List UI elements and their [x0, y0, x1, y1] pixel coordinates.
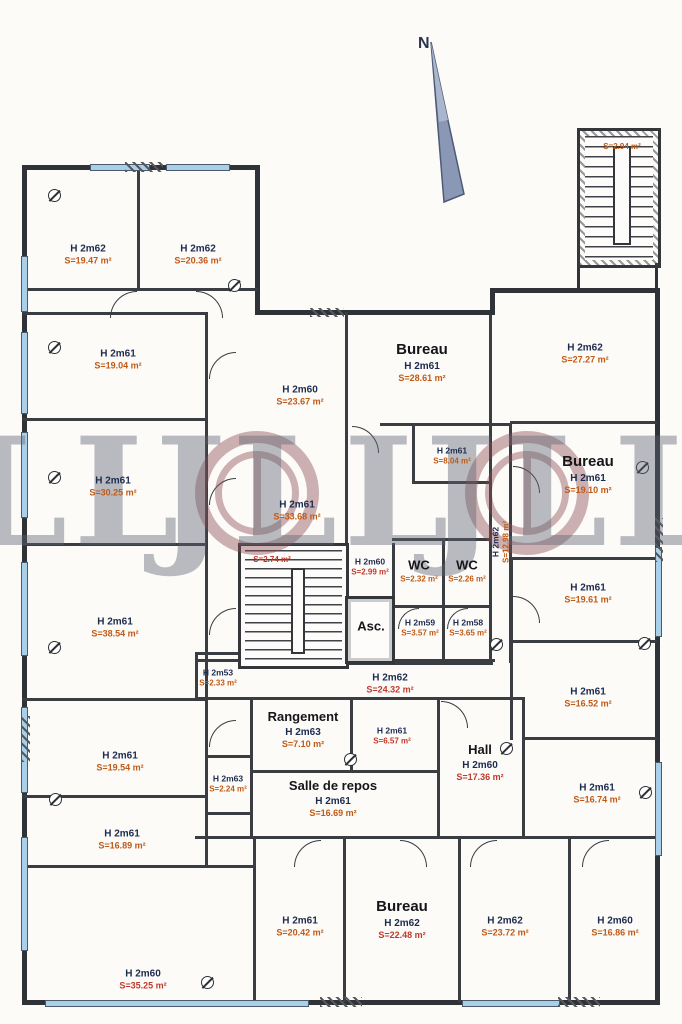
stair-surface-label: S=2.94 m²: [603, 142, 641, 152]
wall: [458, 838, 461, 1002]
room-label: H 2m60 S=2.99 m²: [351, 556, 389, 577]
wall: [568, 838, 571, 1002]
room-height: H 2m61: [564, 686, 611, 699]
room-label: H 2m61 S=16.52 m²: [564, 686, 611, 711]
room-surface: S=2.94 m²: [603, 142, 641, 152]
wall: [195, 697, 522, 700]
room-surface: S=2.32 m²: [400, 574, 438, 584]
room-height: H 2m53: [199, 667, 237, 678]
room-height: H 2m60: [351, 556, 389, 567]
room-label: H 2m60 S=23.67 m²: [276, 384, 323, 409]
room-label: WC S=2.26 m²: [448, 557, 486, 584]
room-label: H 2m62 S=24.32 m²: [366, 672, 413, 697]
room-surface: S=28.61 m²: [396, 372, 448, 384]
wall-hatch: [310, 308, 344, 317]
door-arc: [209, 608, 236, 635]
room-height: H 2m63: [209, 773, 247, 784]
room-title: Salle de repos: [289, 778, 377, 795]
room-height: H 2m62: [490, 521, 501, 563]
room-title: Asc.: [357, 619, 384, 636]
window: [166, 164, 230, 171]
room-height: H 2m59: [401, 617, 439, 628]
door-arc: [196, 291, 223, 318]
room-surface: S=16.69 m²: [289, 808, 377, 820]
room-surface: S=19.47 m²: [64, 256, 111, 268]
door-arc: [294, 840, 321, 867]
room-label: H 2m62 S=19.47 m²: [64, 243, 111, 268]
room-height: H 2m61: [396, 359, 448, 372]
room-surface: S=30.25 m²: [89, 488, 136, 500]
room-title: Bureau: [396, 340, 448, 360]
room-surface: S=16.52 m²: [564, 699, 611, 711]
jll-watermark-unit: JLL: [425, 418, 682, 568]
wall: [490, 288, 660, 293]
fixture-icon: [49, 793, 62, 806]
room-surface: S=20.42 m²: [276, 928, 323, 940]
door-arc: [352, 426, 379, 453]
north-arrow: N: [398, 22, 488, 217]
room-label: H 2m61 S=6.57 m²: [373, 725, 411, 746]
room-height: H 2m63: [268, 726, 339, 739]
room-height: H 2m61: [91, 616, 138, 629]
room-label: Salle de repos H 2m61 S=16.69 m²: [289, 778, 377, 820]
wall: [412, 426, 415, 483]
room-height: H 2m61: [289, 795, 377, 808]
room-label: Bureau H 2m61 S=28.61 m²: [396, 340, 448, 384]
wall: [137, 165, 140, 291]
room-surface: S=3.65 m²: [449, 628, 487, 638]
door-arc: [209, 720, 236, 747]
room-height: H 2m62: [64, 243, 111, 256]
fixture-icon: [344, 753, 357, 766]
room-surface: S=7.10 m²: [268, 739, 339, 751]
room-height: H 2m61: [89, 475, 136, 488]
window: [21, 256, 28, 312]
wall: [380, 423, 512, 426]
jll-watermark-letters: JLL: [425, 418, 682, 568]
fixture-icon: [228, 279, 241, 292]
wall: [205, 312, 208, 868]
wall: [510, 557, 513, 740]
window: [21, 432, 28, 518]
window: [21, 562, 28, 656]
room-height: H 2m61: [564, 582, 611, 595]
room-label: H 2m60 S=16.86 m²: [591, 915, 638, 940]
fixture-icon: [638, 637, 651, 650]
room-surface: S=2.33 m²: [199, 678, 237, 688]
elevator-label: Asc.: [357, 619, 384, 636]
door-arc: [400, 840, 427, 867]
wall: [523, 737, 657, 740]
wall: [22, 698, 208, 701]
wall: [253, 770, 440, 773]
wall: [343, 838, 346, 1002]
door-arc: [513, 596, 540, 623]
wall-hatch: [558, 997, 600, 1007]
room-surface: S=33.68 m²: [273, 512, 320, 524]
wall: [510, 557, 657, 560]
room-height: H 2m61: [273, 499, 320, 512]
door-arc: [582, 840, 609, 867]
wall: [22, 418, 208, 421]
room-surface: S=38.54 m²: [91, 629, 138, 641]
fixture-icon: [639, 786, 652, 799]
wall: [437, 700, 440, 838]
fixture-icon: [48, 189, 61, 202]
wall: [392, 605, 492, 608]
room-label: Hall H 2m60 S=17.36 m²: [456, 742, 503, 784]
wall: [207, 812, 252, 815]
wall: [510, 421, 657, 424]
room-surface: S=16.86 m²: [591, 928, 638, 940]
room-surface: S=2.26 m²: [448, 574, 486, 584]
room-label: H 2m59 S=3.57 m²: [401, 617, 439, 638]
room-label: H 2m61 S=30.25 m²: [89, 475, 136, 500]
room-height: H 2m62: [376, 916, 428, 929]
room-height: H 2m61: [562, 471, 614, 484]
room-surface: S=20.36 m²: [174, 256, 221, 268]
fixture-icon: [636, 461, 649, 474]
room-surface: S=19.61 m²: [564, 595, 611, 607]
window: [21, 837, 28, 951]
wall: [253, 838, 256, 1002]
room-label: H 2m61 S=8.04 m²: [433, 445, 471, 466]
fixture-icon: [48, 471, 61, 484]
room-height: H 2m62: [174, 243, 221, 256]
room-surface: S=2.24 m²: [209, 784, 247, 794]
window: [21, 332, 28, 414]
room-surface: S=6.57 m²: [373, 736, 411, 746]
room-label: H 2m61 S=20.42 m²: [276, 915, 323, 940]
room-title: WC: [448, 557, 486, 574]
room-height: H 2m61: [573, 782, 620, 795]
floor-plan: N: [0, 0, 682, 1024]
window: [655, 762, 662, 856]
window: [45, 1000, 309, 1007]
room-surface: S=16.89 m²: [98, 841, 145, 853]
room-label: H 2m61 S=33.68 m²: [273, 499, 320, 524]
north-label: N: [418, 35, 430, 52]
wall: [195, 652, 243, 655]
room-surface: S=27.27 m²: [561, 355, 608, 367]
room-height: H 2m60: [119, 968, 166, 981]
wall: [22, 543, 208, 546]
room-surface: S=2.74 m²: [253, 555, 291, 565]
wall: [22, 288, 258, 291]
room-height: H 2m62: [561, 342, 608, 355]
room-surface: S=23.67 m²: [276, 397, 323, 409]
room-surface: S=3.57 m²: [401, 628, 439, 638]
wall: [489, 315, 492, 425]
room-height: H 2m61: [433, 445, 471, 456]
room-label: H 2m53 S=2.33 m²: [199, 667, 237, 688]
wall-hatch: [655, 518, 663, 562]
wall: [207, 755, 252, 758]
fixture-icon: [490, 638, 503, 651]
room-label: H 2m60 S=35.25 m²: [119, 968, 166, 993]
wall: [490, 288, 495, 315]
room-label: H 2m61 S=19.04 m²: [94, 348, 141, 373]
wall: [345, 312, 348, 557]
room-surface: S=2.99 m²: [351, 567, 389, 577]
door-arc: [209, 478, 236, 505]
room-height: H 2m61: [276, 915, 323, 928]
room-label: H 2m63 S=2.24 m²: [209, 773, 247, 794]
room-title: WC: [400, 557, 438, 574]
room-label: H 2m62 S=27.27 m²: [561, 342, 608, 367]
room-surface: S=24.32 m²: [366, 685, 413, 697]
wall: [655, 288, 660, 1005]
room-height: H 2m61: [98, 828, 145, 841]
room-height: H 2m60: [276, 384, 323, 397]
fixture-icon: [48, 341, 61, 354]
wall: [440, 836, 657, 839]
room-surface: S=17.36 m²: [456, 772, 503, 784]
door-arc: [513, 466, 540, 493]
fixture-icon: [48, 641, 61, 654]
wall: [255, 310, 493, 315]
room-label: H 2m61 S=16.74 m²: [573, 782, 620, 807]
stair-treads: [585, 136, 653, 260]
fixture-icon: [201, 976, 214, 989]
wall: [22, 865, 253, 868]
room-height: H 2m62: [366, 672, 413, 685]
wall-hatch: [320, 997, 362, 1007]
wall: [250, 700, 253, 838]
room-label: H 2m62 S=23.72 m²: [481, 915, 528, 940]
room-surface: S=19.04 m²: [94, 361, 141, 373]
window: [462, 1000, 560, 1007]
door-arc: [470, 840, 497, 867]
room-label: H 2m61 S=38.54 m²: [91, 616, 138, 641]
room-label: Bureau H 2m62 S=22.48 m²: [376, 897, 428, 941]
wall: [412, 481, 492, 484]
stair-rail: [613, 146, 631, 245]
wall: [195, 836, 443, 839]
stair-treads: [245, 550, 342, 662]
room-label: Rangement H 2m63 S=7.10 m²: [268, 709, 339, 751]
room-surface: S=12.98 m²: [501, 521, 511, 563]
room-surface: S=19.54 m²: [96, 763, 143, 775]
room-surface: S=16.74 m²: [573, 795, 620, 807]
room-label: H 2m62 S=12.98 m²: [490, 521, 511, 563]
room-label: WC S=2.32 m²: [400, 557, 438, 584]
stair-rail: [291, 568, 305, 654]
room-title: Bureau: [376, 897, 428, 917]
room-surface: S=19.10 m²: [562, 484, 614, 496]
room-height: H 2m60: [456, 759, 503, 772]
room-label: H 2m58 S=3.65 m²: [449, 617, 487, 638]
room-label: H 2m61 S=19.61 m²: [564, 582, 611, 607]
room-height: H 2m62: [481, 915, 528, 928]
door-arc: [110, 291, 137, 318]
door-arc: [209, 352, 236, 379]
room-title: Rangement: [268, 709, 339, 726]
wall: [255, 165, 260, 315]
room-label: Bureau H 2m61 S=19.10 m²: [562, 452, 614, 496]
room-surface: S=22.48 m²: [376, 929, 428, 941]
room-surface: S=23.72 m²: [481, 928, 528, 940]
room-label: H 2m61 S=16.89 m²: [98, 828, 145, 853]
room-surface: S=35.25 m²: [119, 981, 166, 993]
room-label: S=2.74 m²: [253, 555, 291, 565]
wall: [510, 640, 657, 643]
wall-hatch: [125, 162, 163, 172]
room-height: H 2m60: [591, 915, 638, 928]
wall: [195, 652, 198, 700]
wall: [522, 697, 525, 839]
room-label: H 2m62 S=20.36 m²: [174, 243, 221, 268]
room-title: Bureau: [562, 452, 614, 472]
room-title: Hall: [456, 742, 503, 759]
room-height: H 2m61: [94, 348, 141, 361]
door-arc: [441, 701, 468, 728]
room-surface: S=8.04 m²: [433, 456, 471, 466]
wall: [442, 538, 445, 665]
wall-hatch: [22, 716, 30, 762]
room-height: H 2m58: [449, 617, 487, 628]
room-height: H 2m61: [373, 725, 411, 736]
room-height: H 2m61: [96, 750, 143, 763]
room-label: H 2m61 S=19.54 m²: [96, 750, 143, 775]
